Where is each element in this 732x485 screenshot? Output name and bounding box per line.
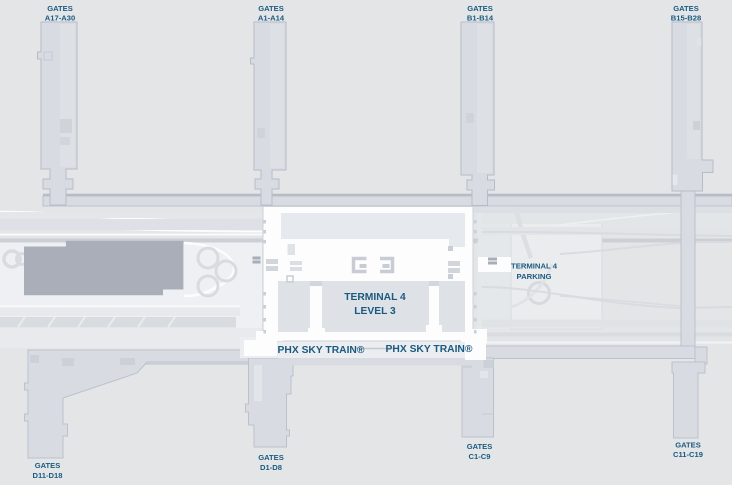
svg-text:PHX SKY TRAIN®: PHX SKY TRAIN®: [278, 345, 365, 356]
svg-text:GATES: GATES: [467, 4, 493, 13]
svg-text:A17-A30: A17-A30: [45, 14, 75, 23]
svg-text:B15-B28: B15-B28: [671, 14, 701, 23]
svg-text:TERMINAL 4: TERMINAL 4: [511, 262, 558, 271]
svg-text:GATES: GATES: [675, 441, 701, 450]
svg-text:GATES: GATES: [673, 4, 699, 13]
svg-text:A1-A14: A1-A14: [258, 14, 285, 23]
svg-text:D11-D18: D11-D18: [33, 471, 63, 480]
svg-text:GATES: GATES: [258, 4, 284, 13]
svg-text:GATES: GATES: [258, 453, 284, 462]
svg-text:C1-C9: C1-C9: [469, 452, 491, 461]
svg-text:B1-B14: B1-B14: [467, 14, 494, 23]
svg-text:LEVEL 3: LEVEL 3: [354, 306, 396, 317]
svg-text:PHX SKY TRAIN®: PHX SKY TRAIN®: [386, 344, 473, 355]
svg-text:GATES: GATES: [35, 461, 61, 470]
svg-text:GATES: GATES: [467, 442, 493, 451]
svg-text:GATES: GATES: [47, 4, 73, 13]
svg-text:D1-D8: D1-D8: [260, 463, 282, 472]
svg-text:PARKING: PARKING: [517, 272, 552, 281]
svg-text:TERMINAL 4: TERMINAL 4: [344, 292, 406, 303]
svg-text:C11-C19: C11-C19: [673, 450, 703, 459]
